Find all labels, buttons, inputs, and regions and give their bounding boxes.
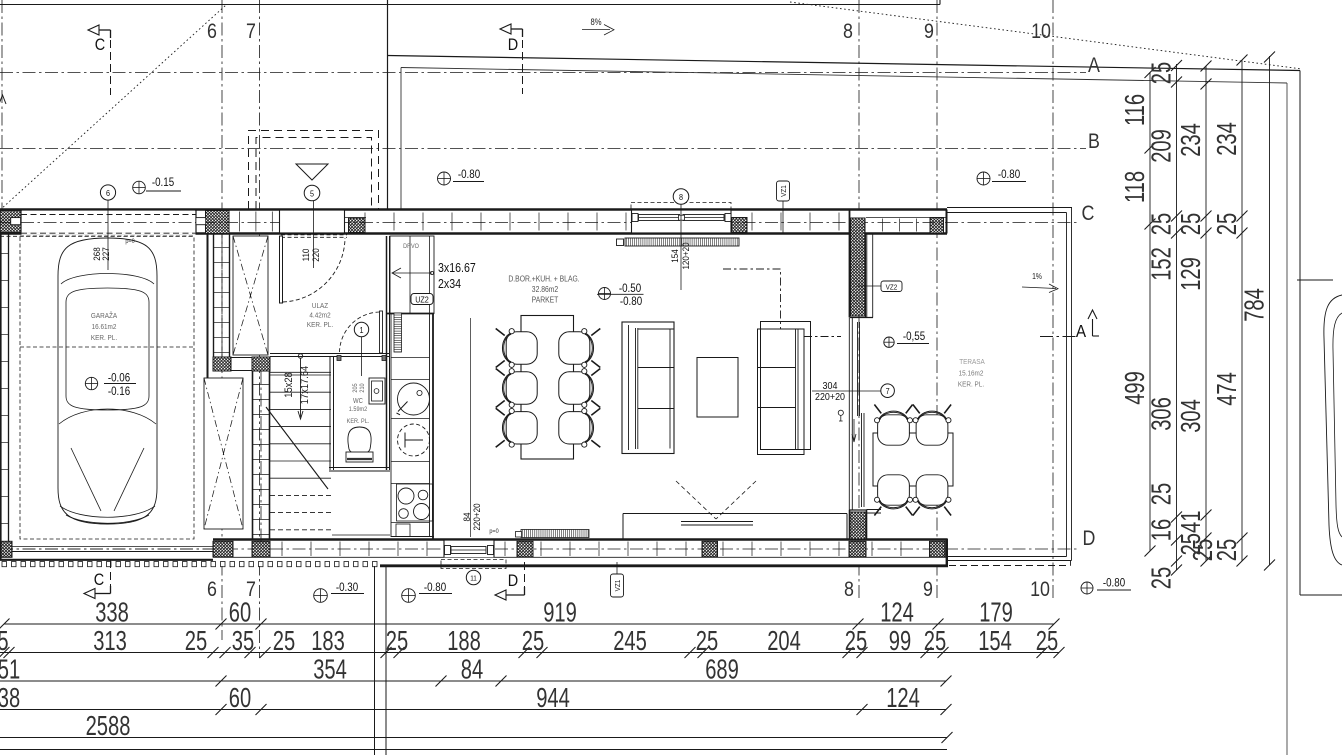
svg-text:60: 60	[229, 683, 251, 714]
svg-text:16.61m2: 16.61m2	[92, 324, 117, 332]
svg-text:KER. PL.: KER. PL.	[347, 419, 370, 425]
svg-text:25: 25	[273, 626, 295, 657]
svg-text:-0.50: -0.50	[619, 282, 641, 295]
svg-text:16: 16	[1146, 519, 1177, 541]
svg-text:118: 118	[1120, 171, 1151, 203]
svg-text:17x17.64: 17x17.64	[299, 365, 311, 404]
svg-text:25: 25	[1146, 213, 1177, 235]
svg-text:227: 227	[100, 247, 111, 261]
svg-text:VZ1: VZ1	[615, 580, 623, 592]
svg-text:116: 116	[1120, 94, 1151, 126]
svg-text:UZ2: UZ2	[415, 295, 429, 305]
svg-text:D: D	[508, 36, 518, 54]
svg-text:313: 313	[93, 626, 127, 657]
svg-text:KER. PL.: KER. PL.	[91, 335, 117, 343]
svg-text:p=0: p=0	[489, 529, 499, 535]
svg-text:6: 6	[207, 20, 217, 44]
svg-text:11: 11	[470, 575, 477, 583]
svg-text:C: C	[1082, 202, 1095, 226]
svg-text:1.59m2: 1.59m2	[349, 407, 368, 413]
svg-text:129: 129	[1176, 257, 1207, 291]
svg-text:944: 944	[536, 683, 570, 714]
svg-text:7: 7	[246, 20, 256, 44]
svg-text:474: 474	[1212, 372, 1243, 406]
svg-text:188: 188	[447, 626, 481, 657]
svg-text:154: 154	[669, 249, 680, 263]
svg-text:25: 25	[1146, 567, 1177, 589]
svg-text:25: 25	[1176, 213, 1207, 235]
svg-text:689: 689	[705, 654, 739, 685]
svg-text:124: 124	[880, 597, 914, 628]
svg-text:51: 51	[0, 654, 20, 685]
svg-text:25: 25	[1036, 626, 1058, 657]
svg-text:p=0: p=0	[125, 239, 135, 245]
svg-text:25: 25	[386, 626, 408, 657]
svg-text:204: 204	[767, 626, 801, 657]
svg-text:2x34: 2x34	[438, 277, 462, 291]
svg-text:338: 338	[95, 597, 129, 628]
svg-text:154: 154	[978, 626, 1012, 657]
svg-text:60: 60	[229, 597, 251, 628]
svg-text:234: 234	[1176, 123, 1207, 157]
svg-text:-0,55: -0,55	[903, 330, 925, 343]
svg-text:1%: 1%	[1032, 271, 1042, 281]
svg-text:210: 210	[360, 383, 366, 393]
svg-text:38: 38	[0, 683, 20, 714]
svg-text:25: 25	[1146, 483, 1177, 505]
svg-text:-0.80: -0.80	[998, 168, 1020, 181]
svg-text:DRVO: DRVO	[403, 244, 419, 250]
svg-text:784: 784	[1239, 288, 1270, 322]
svg-text:919: 919	[543, 597, 577, 628]
svg-text:VZ1: VZ1	[781, 185, 789, 197]
svg-text:15.16m2: 15.16m2	[959, 370, 984, 378]
svg-text:25: 25	[522, 626, 544, 657]
svg-text:B: B	[1088, 130, 1100, 154]
svg-text:-0.80: -0.80	[1103, 577, 1125, 590]
svg-text:2588: 2588	[86, 711, 131, 742]
svg-text:120+20: 120+20	[680, 242, 691, 269]
svg-text:25: 25	[1188, 539, 1219, 561]
svg-text:8: 8	[843, 20, 853, 44]
svg-text:205: 205	[353, 383, 359, 393]
svg-text:TERASA: TERASA	[959, 359, 985, 367]
svg-text:220+20: 220+20	[815, 391, 846, 403]
svg-text:9: 9	[924, 20, 934, 44]
svg-text:3x16.67: 3x16.67	[438, 261, 476, 275]
svg-text:-0.80: -0.80	[424, 581, 446, 594]
svg-text:WC: WC	[353, 398, 363, 406]
svg-text:D: D	[508, 572, 518, 590]
svg-text:25: 25	[1212, 213, 1243, 235]
svg-text:32.86m2: 32.86m2	[532, 284, 558, 294]
svg-text:209: 209	[1146, 129, 1177, 163]
svg-text:GARAŽA: GARAŽA	[91, 310, 118, 320]
svg-text:7: 7	[886, 386, 890, 396]
svg-text:234: 234	[1212, 122, 1243, 156]
svg-text:-0.06: -0.06	[108, 372, 130, 385]
svg-text:179: 179	[979, 597, 1013, 628]
svg-text:D: D	[1083, 527, 1096, 551]
svg-text:8: 8	[844, 578, 854, 602]
svg-text:1: 1	[359, 325, 363, 335]
svg-text:D.BOR.+KUH. + BLAG.: D.BOR.+KUH. + BLAG.	[508, 274, 579, 284]
svg-text:306: 306	[1146, 397, 1177, 431]
svg-text:-0.80: -0.80	[620, 295, 642, 308]
svg-text:25: 25	[924, 626, 946, 657]
svg-text:99: 99	[889, 626, 911, 657]
svg-text:25: 25	[845, 626, 867, 657]
svg-text:4.42m2: 4.42m2	[309, 312, 330, 320]
svg-text:A: A	[1088, 54, 1100, 78]
svg-text:VZ2: VZ2	[886, 284, 898, 292]
svg-text:84: 84	[461, 654, 483, 685]
svg-text:6: 6	[207, 578, 217, 602]
svg-text:-0.16: -0.16	[108, 385, 130, 398]
svg-text:C: C	[94, 571, 104, 589]
svg-text:124: 124	[886, 683, 920, 714]
svg-text:304: 304	[1176, 399, 1207, 433]
svg-text:25: 25	[1146, 62, 1177, 84]
svg-text:152: 152	[1146, 247, 1177, 281]
svg-text:-0.15: -0.15	[152, 176, 174, 189]
svg-text:A: A	[1076, 321, 1087, 341]
svg-text:354: 354	[313, 654, 347, 685]
svg-text:KER. PL.: KER. PL.	[307, 322, 333, 330]
svg-text:5: 5	[0, 626, 9, 657]
svg-text:8: 8	[679, 192, 684, 202]
svg-text:10: 10	[1031, 20, 1051, 44]
svg-text:C: C	[95, 36, 105, 54]
svg-text:35: 35	[232, 626, 254, 657]
svg-text:9: 9	[923, 578, 933, 602]
svg-text:ULAZ: ULAZ	[312, 303, 329, 311]
svg-text:183: 183	[311, 626, 345, 657]
svg-text:8%: 8%	[590, 16, 602, 27]
svg-text:6: 6	[106, 188, 111, 198]
svg-text:15x28: 15x28	[283, 372, 295, 398]
svg-text:25: 25	[696, 626, 718, 657]
svg-text:25: 25	[185, 626, 207, 657]
svg-text:-0.30: -0.30	[336, 581, 358, 594]
svg-text:245: 245	[613, 626, 647, 657]
svg-text:10: 10	[1030, 578, 1050, 602]
svg-text:220+20: 220+20	[471, 503, 482, 530]
svg-text:5: 5	[310, 189, 315, 199]
svg-text:PARKET: PARKET	[532, 295, 559, 305]
svg-text:-0.80: -0.80	[458, 168, 480, 181]
svg-text:220: 220	[310, 248, 321, 262]
svg-text:KER. PL.: KER. PL.	[958, 381, 984, 389]
